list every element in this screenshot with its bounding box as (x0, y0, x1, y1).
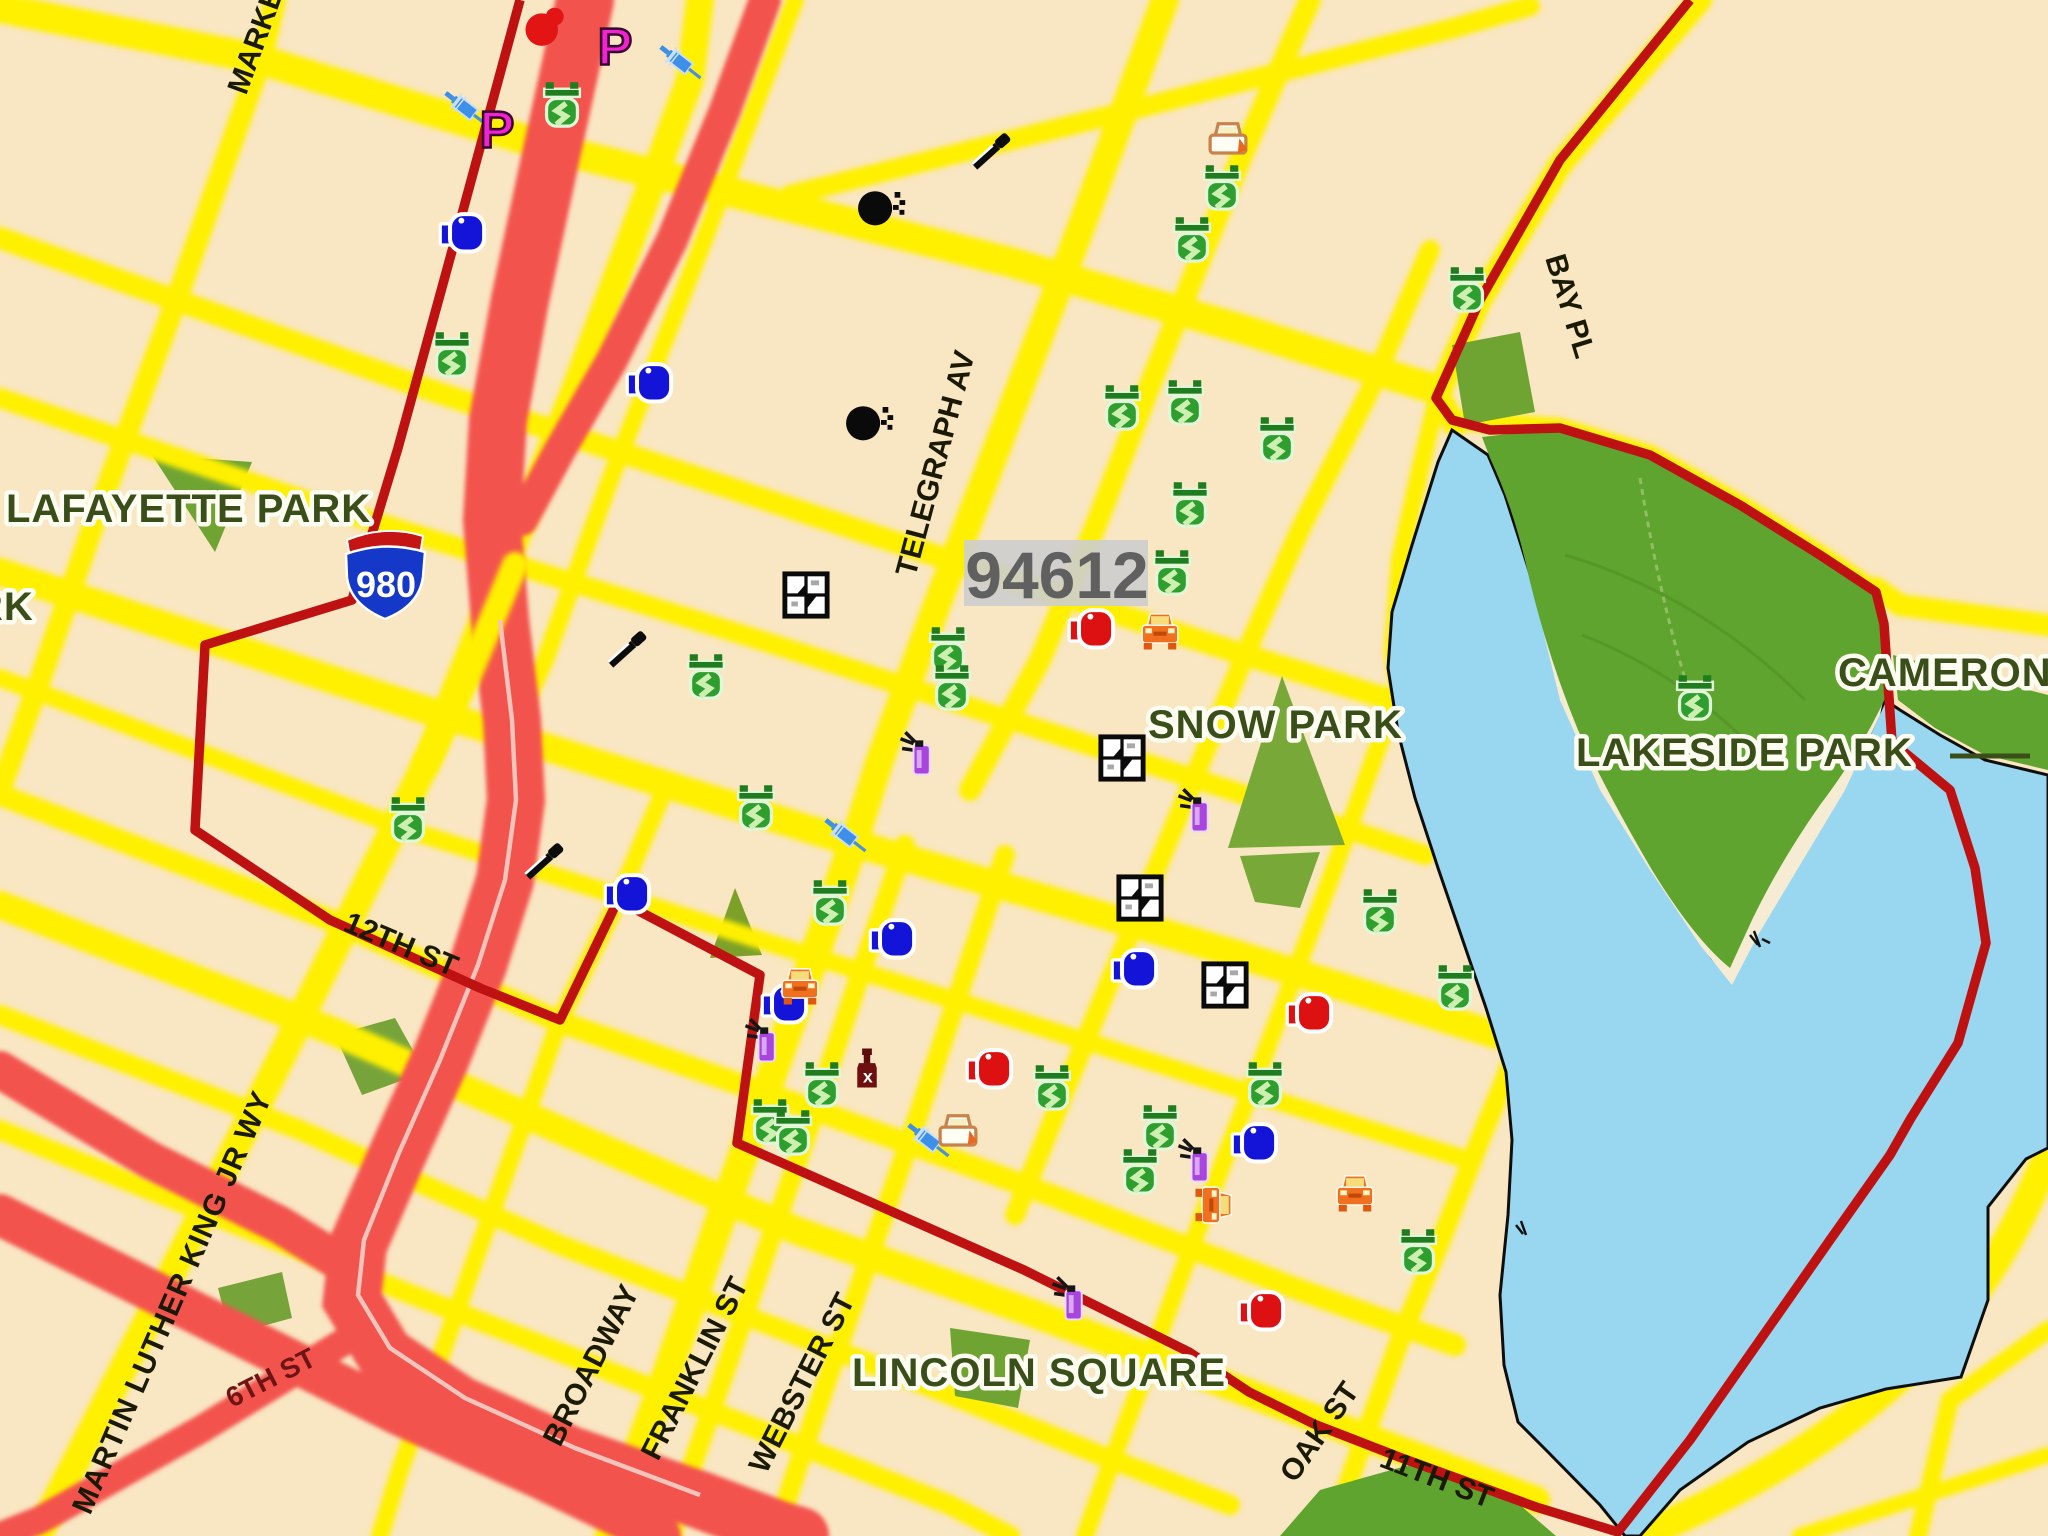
svg-text:LINCOLN SQUARE: LINCOLN SQUARE (852, 1351, 1226, 1395)
svg-text:SNOW PARK: SNOW PARK (1148, 703, 1403, 747)
svg-text:CAMERON: CAMERON (1838, 651, 2048, 695)
svg-text:LAFAYETTE PARK: LAFAYETTE PARK (6, 487, 371, 531)
svg-text:94612: 94612 (965, 538, 1149, 612)
svg-text:LAKESIDE PARK: LAKESIDE PARK (1576, 731, 1913, 775)
svg-text:RK: RK (0, 585, 34, 629)
svg-text:980: 980 (356, 564, 416, 605)
